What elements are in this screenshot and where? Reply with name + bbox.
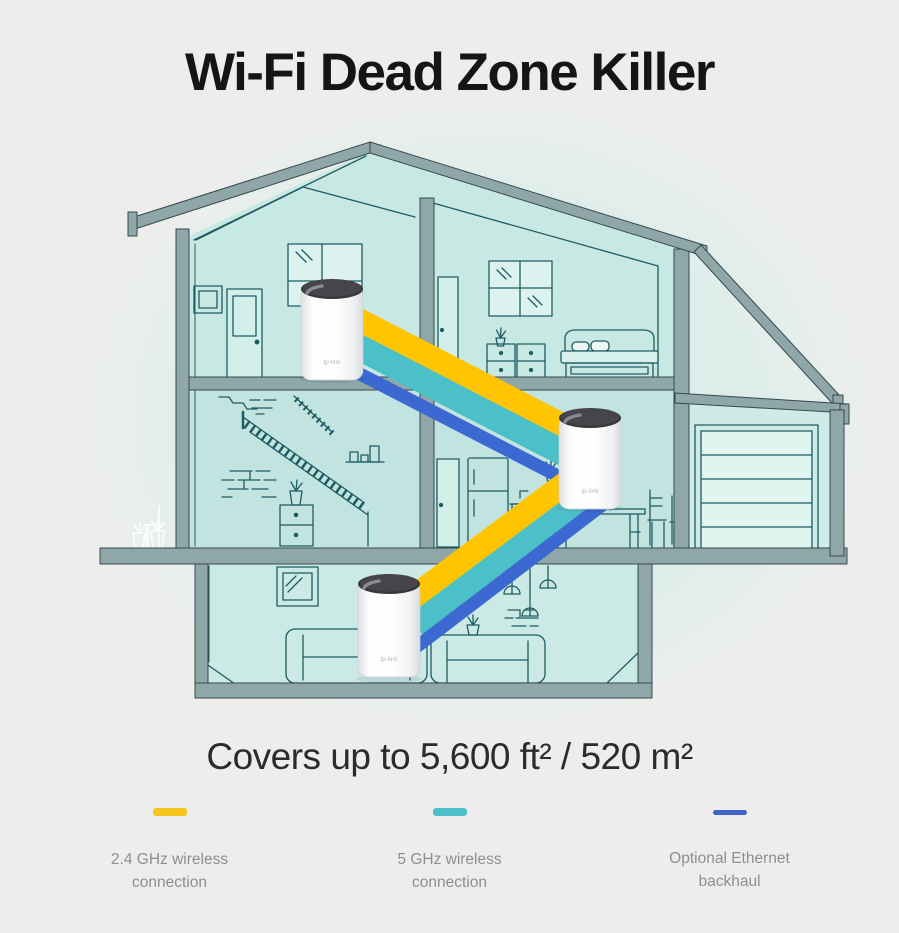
coverage-text: Covers up to 5,600 ft² / 520 m² xyxy=(0,736,899,778)
legend-label-5ghz: 5 GHz wireless connection xyxy=(360,848,540,895)
legend-swatch-ethernet xyxy=(713,810,747,815)
window xyxy=(489,261,552,316)
legend-swatch-5ghz xyxy=(433,808,467,816)
brand-logo: tp-link xyxy=(581,488,599,495)
deco-unit-ground: tp-link xyxy=(356,574,422,683)
legend-swatch-24ghz xyxy=(153,808,187,816)
roof-left-tip xyxy=(128,212,137,236)
garage xyxy=(695,425,818,555)
door xyxy=(227,289,262,380)
ground-right-wall xyxy=(638,564,652,685)
deco-unit-middle: tp-link xyxy=(557,408,623,512)
garage-right-wall xyxy=(830,410,844,556)
page: Wi-Fi Dead Zone Killer xyxy=(0,0,899,933)
brand-logo: tp-link xyxy=(323,359,341,366)
ground-left-wall xyxy=(195,564,208,685)
left-wall xyxy=(176,229,189,555)
brand-logo: tp-link xyxy=(380,656,398,663)
deco-unit-attic: tp-link xyxy=(299,279,365,383)
legend-label-24ghz: 2.4 GHz wireless connection xyxy=(80,848,260,895)
house-illustration: tp-link tp-link tp-link xyxy=(0,0,899,933)
legend: 2.4 GHz wireless connection 5 GHz wirele… xyxy=(0,808,899,895)
foundation xyxy=(195,683,652,698)
legend-item-24ghz: 2.4 GHz wireless connection xyxy=(30,808,310,895)
legend-item-5ghz: 5 GHz wireless connection xyxy=(310,808,590,895)
garage-door xyxy=(701,431,812,552)
door xyxy=(437,459,459,547)
legend-item-ethernet: Optional Ethernet backhaul xyxy=(590,808,870,895)
legend-label-ethernet: Optional Ethernet backhaul xyxy=(640,847,820,894)
